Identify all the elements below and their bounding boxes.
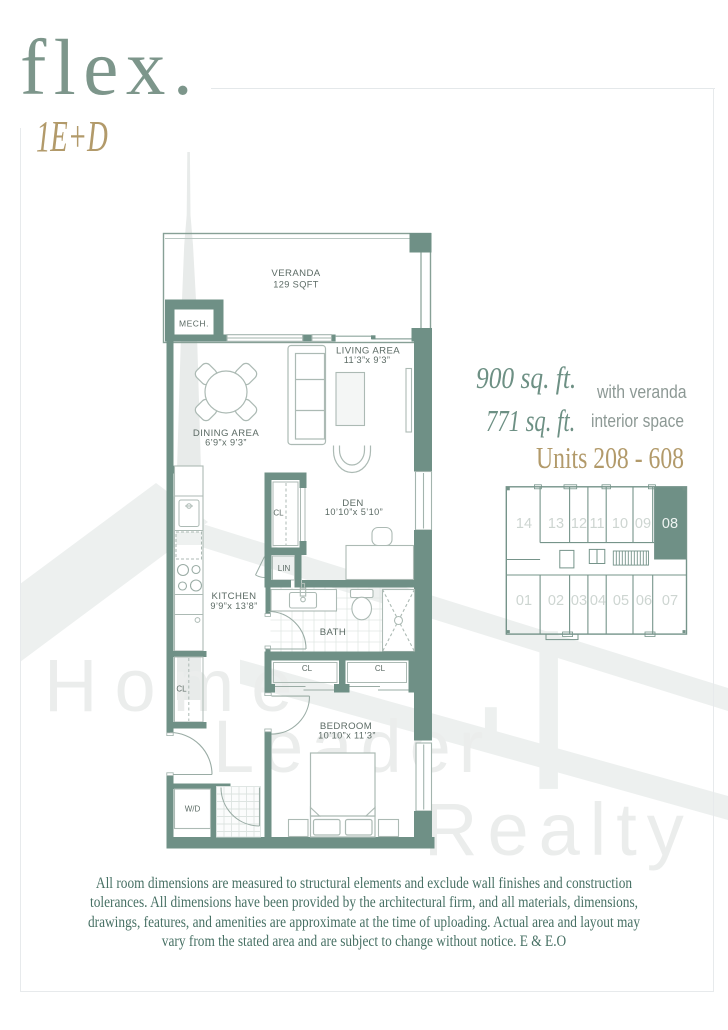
svg-text:VERANDA: VERANDA — [271, 268, 320, 279]
svg-text:6’9”x 9’3”: 6’9”x 9’3” — [205, 438, 247, 448]
svg-text:11: 11 — [589, 516, 604, 532]
svg-text:CL: CL — [302, 664, 313, 673]
svg-text:10’10”x 11’3”: 10’10”x 11’3” — [318, 731, 376, 741]
svg-text:07: 07 — [662, 593, 678, 609]
svg-text:04: 04 — [590, 593, 606, 609]
svg-text:MECH.: MECH. — [179, 319, 209, 329]
svg-text:10: 10 — [612, 516, 628, 532]
svg-text:10’10”x 5’10”: 10’10”x 5’10” — [325, 507, 383, 517]
svg-text:11’3”x 9’3”: 11’3”x 9’3” — [344, 355, 391, 365]
svg-text:01: 01 — [516, 593, 532, 609]
svg-text:W/D: W/D — [185, 805, 201, 814]
svg-text:CL: CL — [273, 509, 284, 518]
svg-text:06: 06 — [636, 593, 652, 609]
svg-text:12: 12 — [571, 516, 587, 532]
svg-text:9’9”x 13’8”: 9’9”x 13’8” — [210, 601, 257, 611]
svg-text:129 SQFT: 129 SQFT — [273, 280, 319, 290]
svg-text:03: 03 — [571, 593, 587, 609]
svg-text:13: 13 — [548, 516, 564, 532]
svg-text:BATH: BATH — [320, 627, 346, 638]
svg-text:09: 09 — [635, 516, 651, 532]
svg-text:05: 05 — [613, 593, 629, 609]
svg-text:LIN: LIN — [278, 564, 291, 573]
svg-text:02: 02 — [548, 593, 564, 609]
svg-text:CL: CL — [176, 685, 187, 694]
svg-text:14: 14 — [516, 516, 532, 532]
svg-text:CL: CL — [375, 664, 386, 673]
svg-text:08: 08 — [662, 516, 678, 532]
svg-text:Realty: Realty — [424, 788, 694, 871]
